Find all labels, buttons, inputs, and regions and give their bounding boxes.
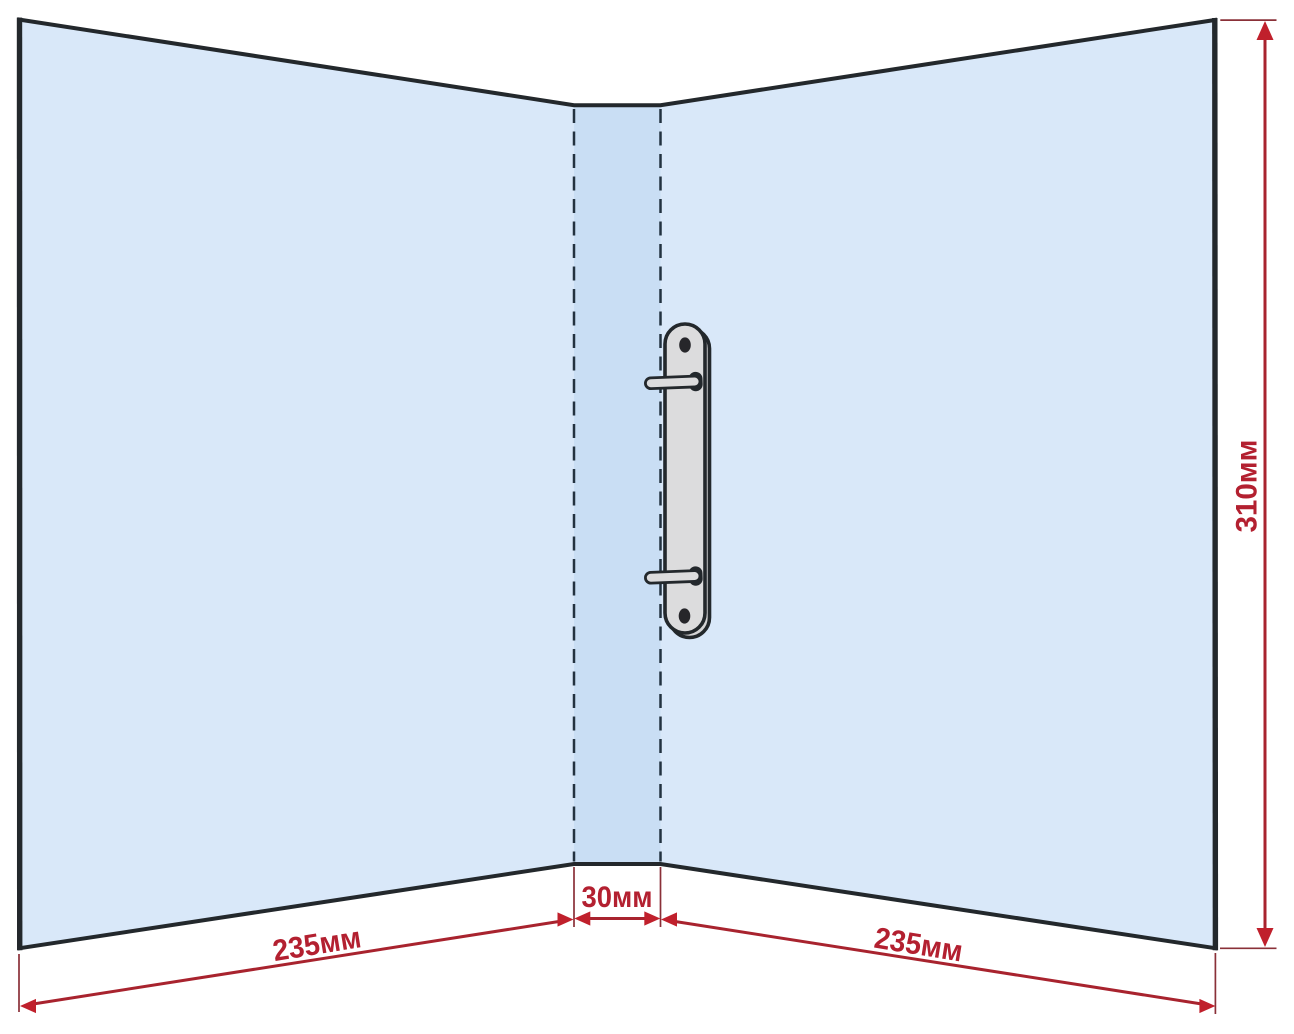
svg-text:310мм: 310мм <box>1231 440 1264 533</box>
svg-text:30мм: 30мм <box>582 881 653 914</box>
